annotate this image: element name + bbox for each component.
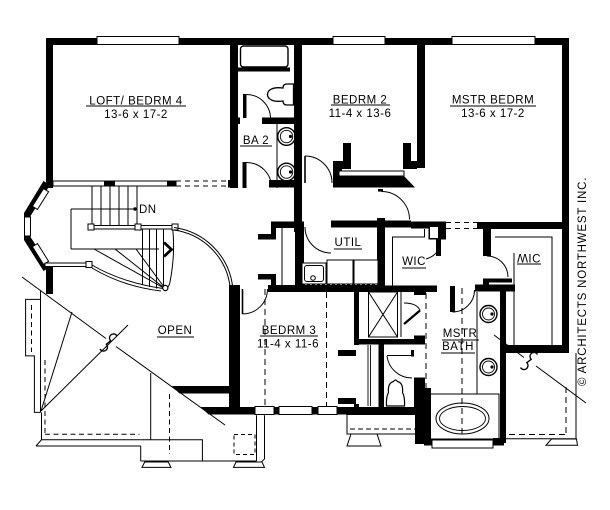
svg-text:WIC: WIC (517, 251, 541, 263)
svg-text:BATH: BATH (442, 341, 474, 353)
svg-text:© ARCHITECTS NORTHWEST INC.: © ARCHITECTS NORTHWEST INC. (577, 177, 589, 386)
svg-text:11-4 x 11-6: 11-4 x 11-6 (257, 339, 319, 351)
svg-text:UTIL: UTIL (335, 237, 362, 249)
svg-text:OPEN: OPEN (158, 325, 193, 337)
svg-text:MSTR BEDRM: MSTR BEDRM (452, 95, 534, 107)
svg-text:BEDRM 3: BEDRM 3 (262, 325, 317, 337)
svg-text:DN: DN (139, 204, 157, 216)
svg-text:11-4 x 13-6: 11-4 x 13-6 (329, 108, 392, 120)
svg-text:MSTR: MSTR (443, 328, 478, 340)
svg-text:WIC: WIC (402, 256, 426, 268)
svg-text:13-6 x 17-2: 13-6 x 17-2 (104, 109, 168, 121)
svg-text:BA 2: BA 2 (243, 135, 269, 147)
svg-text:13-6 x 17-2: 13-6 x 17-2 (461, 108, 525, 120)
